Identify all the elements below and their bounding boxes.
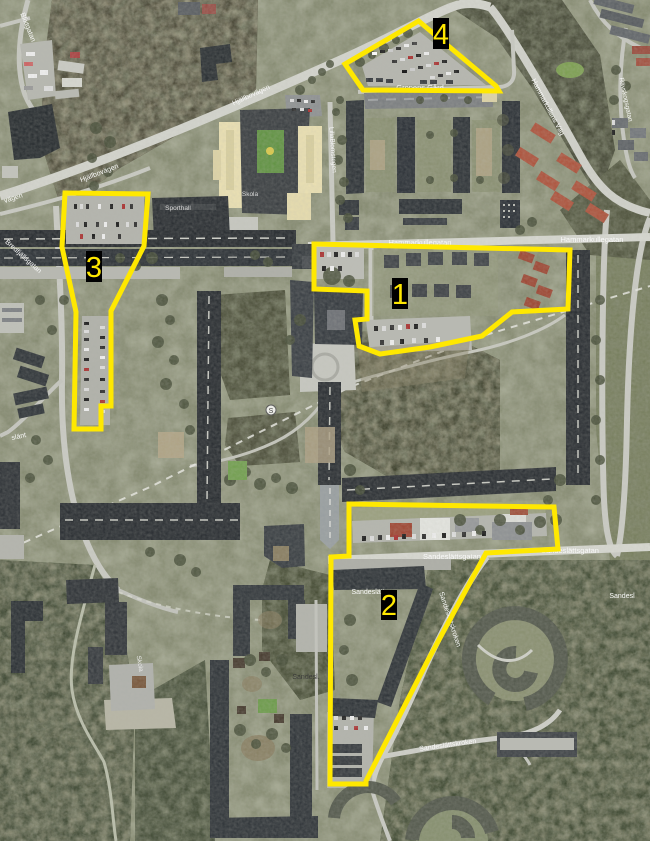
svg-text:4: 4 xyxy=(433,19,449,51)
svg-text:1: 1 xyxy=(392,279,408,311)
svg-text:2: 2 xyxy=(381,590,397,622)
svg-text:3: 3 xyxy=(86,252,102,284)
